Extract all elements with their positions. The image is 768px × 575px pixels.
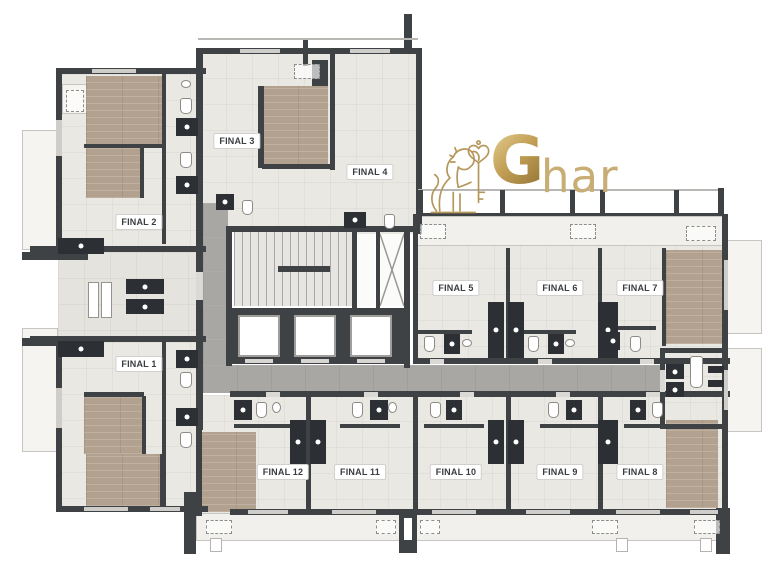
elevator: [350, 315, 392, 357]
unit-label-final-7: FINAL 7: [616, 280, 663, 296]
unit-label-final-1: FINAL 1: [115, 356, 162, 372]
toilet: [352, 402, 363, 418]
window: [616, 510, 660, 514]
unit-label-final-3: FINAL 3: [213, 133, 260, 149]
unit-label-final-2: FINAL 2: [115, 214, 162, 230]
vanity-counter: [176, 408, 198, 426]
toilet: [180, 372, 192, 388]
entry-door: [88, 282, 99, 318]
shelf: [708, 380, 724, 387]
toilet: [256, 402, 267, 418]
wall: [142, 396, 146, 454]
window: [690, 510, 718, 514]
brand-text: har: [541, 150, 619, 203]
lion-with-key-icon: [428, 138, 492, 218]
corridor: [203, 365, 664, 393]
door-gap: [364, 392, 378, 397]
window: [56, 120, 62, 156]
door-gap: [640, 359, 654, 364]
pier-slot: [404, 518, 412, 540]
wall: [540, 424, 600, 428]
laundry-unit: [666, 364, 684, 379]
wardrobe: [508, 302, 524, 358]
ac-unit: [694, 520, 720, 534]
unit-label-final-9: FINAL 9: [536, 464, 583, 480]
wall: [258, 86, 264, 168]
unit-label-final-4: FINAL 4: [346, 164, 393, 180]
vanity-counter: [176, 118, 198, 136]
wall: [196, 428, 202, 516]
door-gap: [660, 370, 665, 392]
door-gap: [538, 359, 552, 364]
sink: [388, 402, 397, 413]
kitchen-counter: [126, 299, 164, 314]
unit-label-final-12: FINAL 12: [257, 464, 309, 480]
toilet: [528, 336, 539, 352]
wall: [84, 392, 144, 397]
window: [92, 69, 136, 73]
wardrobe: [310, 420, 326, 464]
shelf: [708, 366, 724, 373]
ac-unit: [206, 520, 232, 534]
wardrobe: [290, 420, 306, 464]
pier: [184, 492, 196, 554]
toilet: [384, 214, 395, 229]
unit-label-final-8: FINAL 8: [616, 464, 663, 480]
entry-door: [101, 282, 112, 318]
wall: [160, 454, 164, 506]
vanity-counter: [176, 176, 198, 194]
window: [724, 260, 728, 310]
pier: [674, 190, 679, 216]
kitchen-counter: [58, 341, 104, 357]
vanity-counter: [370, 400, 388, 420]
pier: [718, 188, 724, 216]
door-gap: [460, 392, 474, 397]
wall: [660, 424, 724, 429]
wardrobe: [598, 420, 618, 464]
ac-unit: [570, 224, 596, 239]
wood-floor: [86, 76, 164, 146]
wall: [413, 214, 418, 364]
vanity-counter: [548, 334, 564, 354]
sink: [181, 80, 191, 88]
window: [56, 388, 62, 428]
ac-unit: [420, 224, 446, 239]
wall: [234, 424, 290, 428]
column: [210, 538, 222, 552]
elevator: [238, 315, 280, 357]
wall: [56, 68, 62, 254]
balcony: [22, 130, 58, 250]
kitchen-counter: [126, 279, 164, 294]
vanity-counter: [216, 194, 234, 210]
ac-unit: [294, 64, 320, 79]
vanity-counter: [176, 350, 198, 368]
floor-slab: [330, 52, 416, 234]
wall: [404, 226, 410, 368]
wood-floor: [666, 250, 722, 344]
window: [432, 510, 476, 514]
door-gap: [196, 272, 203, 300]
wall: [340, 424, 400, 428]
wood-floor: [666, 420, 718, 508]
vanity-counter: [566, 400, 582, 420]
wall: [424, 424, 484, 428]
window: [240, 49, 280, 53]
toilet: [652, 402, 663, 418]
wall: [413, 397, 418, 515]
vanity-counter: [234, 400, 252, 420]
sink: [565, 339, 575, 347]
column: [616, 538, 628, 552]
duct-shaft: [358, 234, 374, 306]
duct-shaft: [380, 234, 404, 306]
ac-unit: [592, 520, 618, 534]
wall: [262, 164, 330, 169]
wood-floor: [84, 396, 144, 454]
ac-unit: [376, 520, 396, 534]
balcony: [726, 348, 762, 432]
toilet: [180, 98, 192, 114]
wall: [196, 52, 203, 272]
floor-plan: FINAL 1 FINAL 2 FINAL 3 FINAL 4 FINAL 5 …: [0, 0, 768, 575]
wood-floor: [200, 432, 256, 512]
brand-initial: G: [490, 130, 544, 193]
door-gap: [646, 392, 660, 397]
ac-unit: [420, 520, 440, 534]
unit-label-final-10: FINAL 10: [430, 464, 482, 480]
wall: [84, 144, 164, 148]
pier: [418, 190, 423, 216]
vanity-counter: [606, 332, 620, 350]
wood-floor: [86, 454, 162, 506]
toilet: [424, 336, 435, 352]
brand-logo: G har: [428, 118, 628, 220]
laundry-unit: [666, 382, 684, 397]
wall: [162, 74, 166, 244]
wall: [140, 148, 144, 198]
toilet: [242, 200, 253, 215]
toilet: [180, 432, 192, 448]
toilet: [548, 402, 559, 418]
pier: [303, 40, 308, 66]
wardrobe: [488, 420, 504, 464]
wardrobe: [508, 420, 524, 464]
ac-unit: [66, 90, 84, 112]
column: [700, 538, 712, 552]
window: [526, 510, 570, 514]
stair-handrail: [278, 266, 330, 272]
shaft-cross-brace-icon: [380, 234, 404, 306]
unit-label-final-6: FINAL 6: [536, 280, 583, 296]
wall: [330, 52, 335, 170]
sink: [462, 339, 472, 347]
wall: [376, 232, 380, 312]
window: [724, 370, 728, 410]
wall: [226, 226, 232, 366]
shower: [690, 356, 703, 388]
vanity-counter: [446, 400, 462, 420]
roof-line: [198, 38, 418, 40]
floor-slab: [58, 252, 204, 338]
door-gap: [430, 359, 444, 364]
unit-label-final-11: FINAL 11: [334, 464, 386, 480]
toilet: [430, 402, 441, 418]
vanity-counter: [444, 334, 460, 354]
wall: [660, 348, 665, 370]
ac-unit: [686, 226, 716, 241]
balcony: [196, 513, 728, 541]
wood-floor: [262, 86, 328, 166]
window: [332, 510, 376, 514]
toilet: [630, 336, 641, 352]
wardrobe: [488, 302, 504, 358]
kitchen-counter: [58, 238, 104, 254]
balcony: [22, 328, 58, 452]
sink: [272, 402, 281, 413]
wall: [660, 348, 724, 353]
window: [350, 49, 390, 53]
window: [248, 510, 288, 514]
wall: [352, 232, 357, 312]
door-gap: [556, 392, 570, 397]
pier: [404, 14, 412, 54]
unit-label-final-5: FINAL 5: [432, 280, 479, 296]
wall: [662, 248, 666, 346]
window: [150, 507, 180, 511]
corridor: [203, 203, 228, 367]
toilet: [180, 152, 192, 168]
vanity-counter: [630, 400, 646, 420]
balcony: [726, 240, 762, 334]
vanity-counter: [344, 212, 366, 228]
door-gap: [266, 392, 280, 397]
window: [84, 507, 128, 511]
wood-floor: [86, 148, 140, 198]
elevator: [294, 315, 336, 357]
